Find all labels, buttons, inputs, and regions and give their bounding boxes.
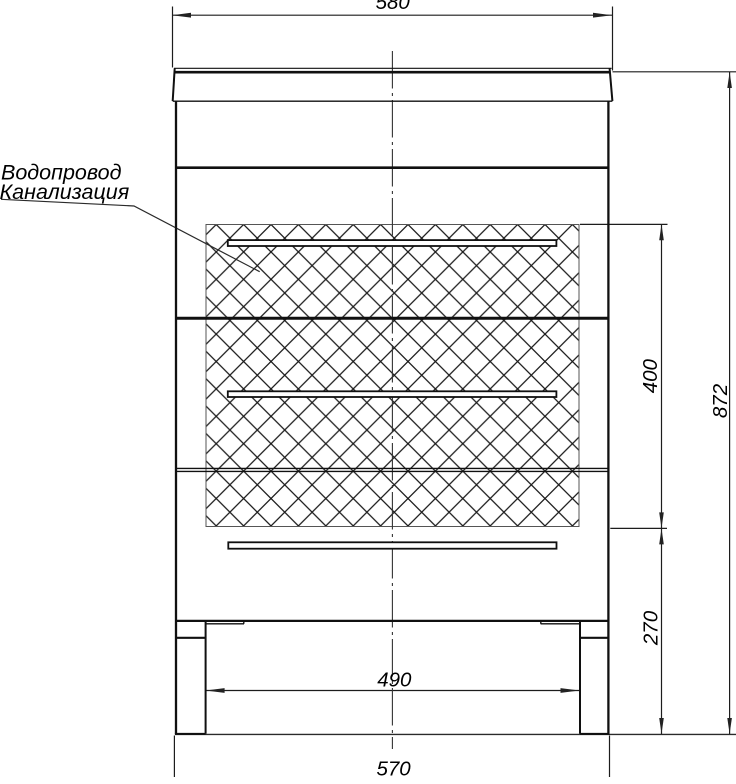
svg-text:Канализация: Канализация: [0, 180, 130, 204]
svg-text:270: 270: [639, 610, 662, 646]
svg-text:490: 490: [377, 668, 412, 691]
svg-text:872: 872: [709, 383, 732, 418]
svg-text:570: 570: [376, 758, 411, 781]
svg-text:580: 580: [376, 0, 411, 14]
svg-text:400: 400: [639, 359, 662, 394]
